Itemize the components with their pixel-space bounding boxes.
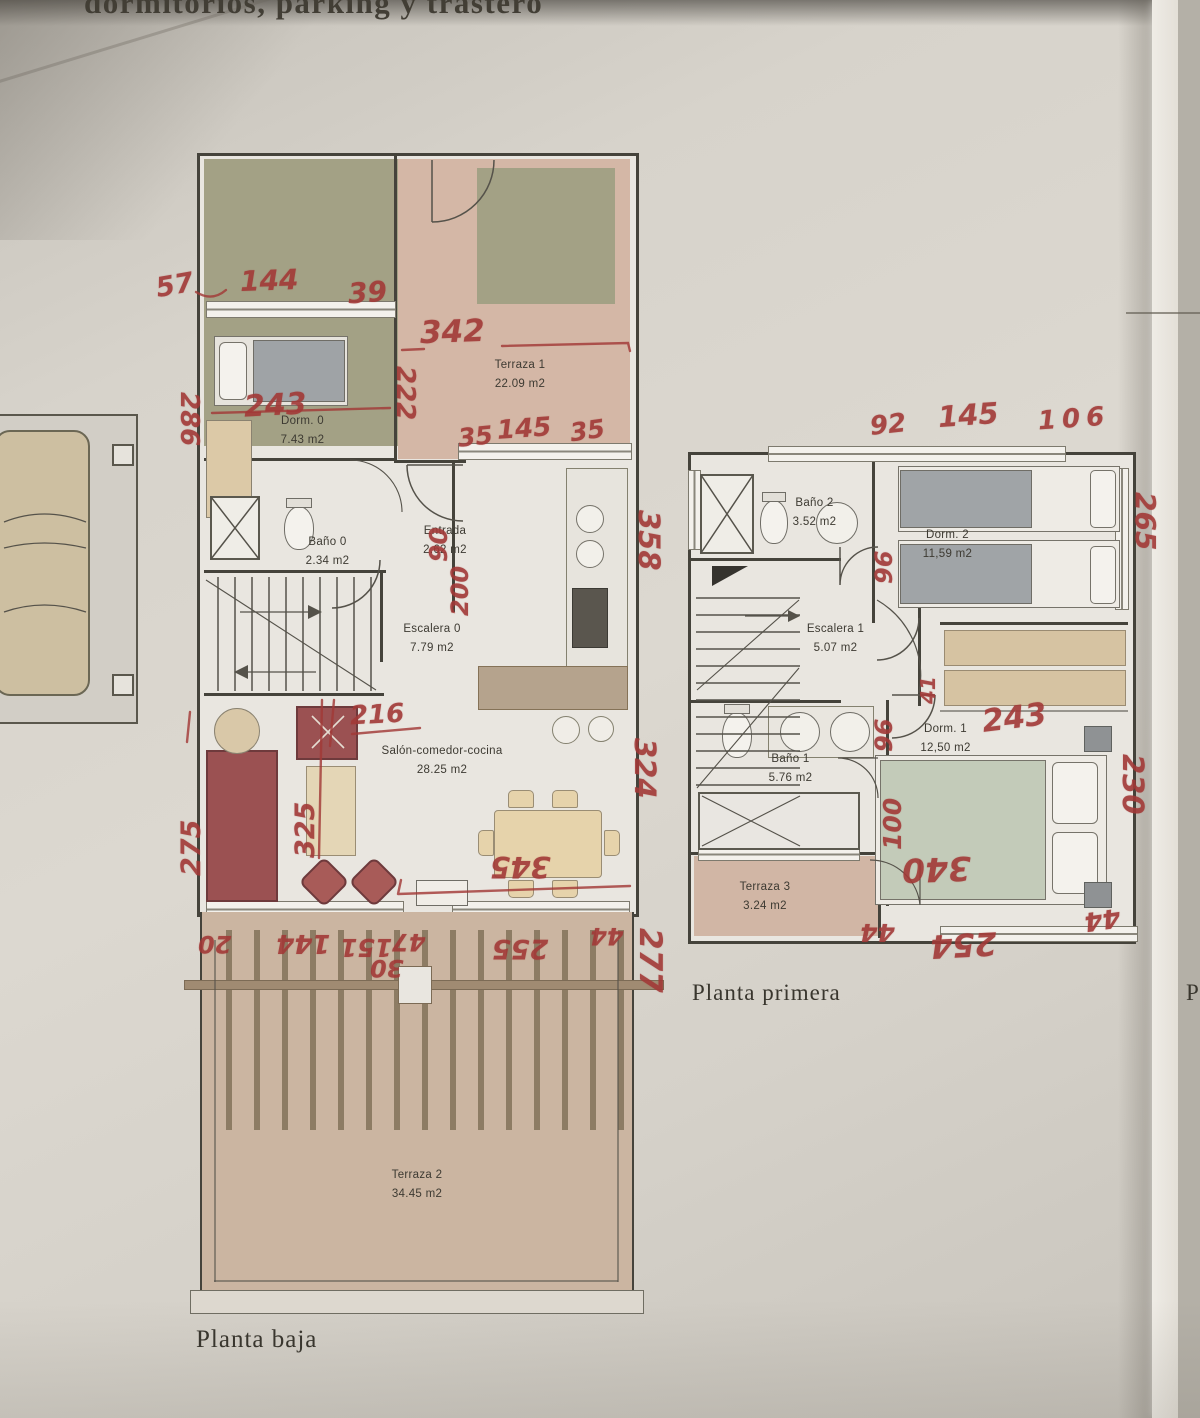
dorm1-pillow	[1052, 762, 1098, 824]
wall	[394, 460, 466, 463]
dim-96a: 96	[870, 551, 898, 584]
bano0-shower	[210, 496, 260, 560]
dim-30: 30	[370, 954, 403, 982]
room-label-terraza3: Terraza 33.24 m2	[710, 878, 820, 916]
bano0-toilet-tank	[286, 498, 312, 508]
dim-144b: 144	[276, 928, 330, 958]
dim-243: 243	[243, 386, 307, 424]
dim-145: 145	[496, 412, 552, 446]
dim-325: 325	[290, 802, 321, 858]
side-table-round	[214, 708, 260, 754]
wardrobe-shelf	[944, 630, 1126, 666]
dim-145f: 145	[937, 396, 1000, 434]
wall	[691, 700, 841, 703]
paper-right-edge-highlight	[1152, 0, 1178, 1418]
dorm2-mattress	[900, 470, 1032, 528]
dim-90: 90	[424, 527, 453, 562]
floor-plan-photo: dormitorios, parking y trastero	[0, 0, 1200, 1418]
terraza2-pergola-slats	[204, 930, 628, 1130]
bano1-sink2	[830, 712, 870, 752]
wall	[204, 693, 384, 696]
dim-286: 286	[174, 392, 204, 446]
room-label-bano0: Baño 02.34 m2	[270, 533, 385, 571]
dim-345: 345	[490, 850, 551, 884]
bano1-sink	[780, 712, 820, 752]
document-header: dormitorios, parking y trastero	[84, 0, 543, 21]
dim-254: 254	[929, 924, 998, 965]
counter-stool2	[588, 716, 614, 742]
kitchen-island	[478, 666, 628, 710]
dim-275: 275	[176, 820, 207, 876]
parking-pillar-top	[112, 444, 134, 466]
bano1-toilet-tank	[724, 704, 750, 714]
dim-106: 106	[1037, 402, 1111, 437]
dim-44c: 44	[1082, 902, 1122, 937]
caption-next-page-partial: P	[1186, 980, 1200, 1006]
room-label-escalera1: Escalera 15.07 m2	[778, 620, 893, 658]
dining-chair	[604, 830, 620, 856]
dim-222: 222	[390, 366, 420, 420]
room-label-salon: Salón-comedor-cocina28.25 m2	[352, 742, 532, 780]
wall	[691, 558, 841, 561]
dim-342: 342	[419, 313, 485, 351]
dim-41: 41	[916, 676, 940, 704]
counter-stool	[552, 716, 580, 744]
terrace-inner-line	[214, 940, 216, 1282]
dim-277: 277	[632, 928, 668, 993]
dim-35b: 35	[568, 414, 606, 448]
second-sheet-edge	[1126, 312, 1200, 314]
wall	[872, 455, 875, 623]
caption-planta-primera: Planta primera	[692, 980, 841, 1006]
window	[768, 446, 1066, 462]
dim-44b: 44	[860, 918, 895, 947]
dim-100: 100	[878, 798, 907, 850]
dining-chair	[552, 880, 578, 898]
caption-planta-baja: Planta baja	[196, 1326, 317, 1354]
dorm2-pillow2	[1090, 546, 1116, 604]
dim-35a: 35	[457, 420, 495, 452]
room-label-terraza1: Terraza 122.09 m2	[450, 356, 590, 394]
room-label-escalera0: Escalera 07.79 m2	[372, 620, 492, 658]
dim-92: 92	[869, 408, 908, 442]
sofa	[206, 750, 278, 902]
dim-20: 20	[198, 930, 231, 958]
dim-230: 230	[1116, 754, 1150, 815]
kitchen-sink	[576, 505, 604, 533]
tv-unit	[416, 880, 468, 906]
bottom-vignette	[0, 1300, 1200, 1418]
dim-44a: 44	[590, 922, 623, 950]
dim-265: 265	[1129, 492, 1162, 550]
room-label-terraza2: Terraza 234.45 m2	[347, 1166, 487, 1204]
room-label-bano1: Baño 15.76 m2	[738, 750, 843, 788]
dim-200: 200	[446, 566, 474, 616]
dim-96b: 96	[870, 719, 898, 752]
wall	[940, 622, 1128, 625]
dim-57: 57	[154, 267, 196, 304]
dim-255: 255	[492, 933, 548, 964]
garden-patch-right	[477, 168, 615, 304]
room-label-dorm2: Dorm. 211,59 m2	[890, 526, 1005, 564]
parking-pillar-bottom	[112, 674, 134, 696]
dim-216: 216	[349, 699, 405, 732]
loveseat	[296, 706, 358, 760]
terrace-inner-line	[214, 1280, 618, 1282]
terraza2-outer-step	[190, 1290, 644, 1314]
kitchen-sink2	[576, 540, 604, 568]
dim-39: 39	[347, 275, 388, 311]
kitchen-stove	[572, 588, 608, 648]
dorm1-nightstand	[1084, 726, 1112, 752]
terrace-inner-line	[617, 940, 619, 1282]
dining-chair	[508, 790, 534, 808]
car	[0, 430, 90, 696]
bano2-shower	[700, 474, 754, 554]
room-label-bano2: Baño 23.52 m2	[762, 494, 867, 532]
dim-358: 358	[632, 510, 666, 571]
dim-340: 340	[901, 849, 971, 890]
bano1-bathtub	[698, 792, 860, 850]
dim-144: 144	[239, 263, 299, 298]
table-surface-right	[1178, 0, 1200, 1418]
dining-chair	[552, 790, 578, 808]
dim-324: 324	[628, 738, 662, 799]
dim-47: 47	[392, 928, 425, 956]
dorm2-pillow	[1090, 470, 1116, 528]
